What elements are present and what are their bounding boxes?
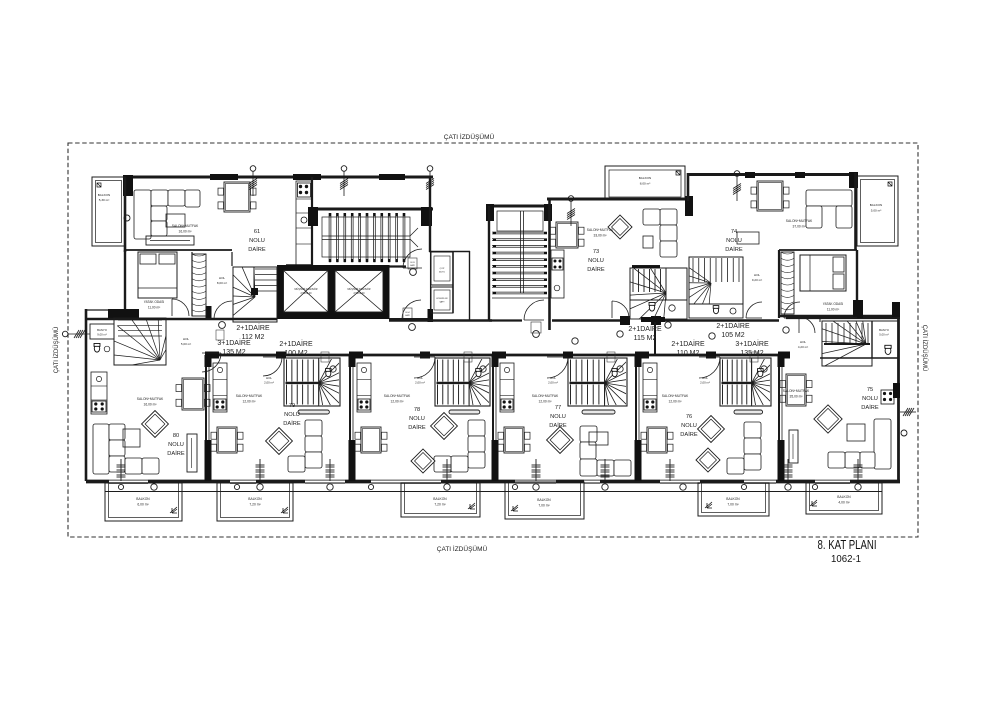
svg-text:HOL: HOL xyxy=(183,337,190,341)
svg-text:4,00 m²: 4,00 m² xyxy=(838,501,850,505)
svg-text:6,00 m²: 6,00 m² xyxy=(137,503,149,507)
svg-text:SALON+MUTFAK: SALON+MUTFAK xyxy=(786,219,813,223)
svg-text:5,00 m²: 5,00 m² xyxy=(181,342,191,346)
svg-text:SALON+MUTFAK: SALON+MUTFAK xyxy=(587,228,614,232)
svg-text:16,00 m²: 16,00 m² xyxy=(143,403,157,407)
svg-text:NOLU: NOLU xyxy=(249,238,265,244)
svg-text:ÇATI İZDÜŞÜMÜ: ÇATI İZDÜŞÜMÜ xyxy=(53,327,60,374)
svg-text:74: 74 xyxy=(731,229,737,235)
svg-text:NOLU: NOLU xyxy=(726,238,742,244)
svg-text:5,00 m²: 5,00 m² xyxy=(871,209,882,213)
svg-text:DAİRE: DAİRE xyxy=(680,431,698,438)
svg-text:2+1DAİRE: 2+1DAİRE xyxy=(671,339,705,348)
svg-text:2+1DAİRE: 2+1DAİRE xyxy=(279,339,313,348)
svg-text:7,20 m²: 7,20 m² xyxy=(249,503,261,507)
svg-text:ÇATI İZDÜŞÜMÜ: ÇATI İZDÜŞÜMÜ xyxy=(437,544,488,553)
svg-text:2+1DAİRE: 2+1DAİRE xyxy=(236,323,270,332)
svg-text:KÖMÜRLÜK: KÖMÜRLÜK xyxy=(436,297,448,300)
svg-text:HOL: HOL xyxy=(702,376,708,380)
svg-text:12,00 m²: 12,00 m² xyxy=(538,400,552,404)
svg-text:BALKON: BALKON xyxy=(726,497,740,501)
svg-text:3+1DAİRE: 3+1DAİRE xyxy=(217,338,251,347)
svg-text:HOL: HOL xyxy=(800,340,807,344)
svg-text:33,00 m²: 33,00 m² xyxy=(593,234,607,238)
svg-text:KAPI: KAPI xyxy=(410,264,415,267)
svg-text:11,00 m²: 11,00 m² xyxy=(827,308,839,312)
svg-text:3+1DAİRE: 3+1DAİRE xyxy=(735,339,769,348)
svg-text:DAİRE: DAİRE xyxy=(549,422,567,429)
svg-text:NOLU: NOLU xyxy=(862,396,878,402)
svg-text:HOL: HOL xyxy=(550,376,556,380)
svg-text:SALON+MUTFAK: SALON+MUTFAK xyxy=(236,394,263,398)
svg-text:DAİRE: DAİRE xyxy=(408,424,426,431)
svg-text:79: 79 xyxy=(289,403,295,409)
svg-text:2,00 m²: 2,00 m² xyxy=(415,381,425,385)
svg-text:75: 75 xyxy=(867,387,873,393)
svg-text:HOL: HOL xyxy=(417,376,423,380)
svg-text:SALON+MUTFAK: SALON+MUTFAK xyxy=(137,397,164,401)
svg-text:135 M2: 135 M2 xyxy=(222,349,245,356)
svg-text:ÇÖP: ÇÖP xyxy=(440,267,445,270)
svg-text:115 M2: 115 M2 xyxy=(634,335,657,342)
svg-text:DAİRE: DAİRE xyxy=(587,266,605,273)
svg-text:16,00 m²: 16,00 m² xyxy=(178,230,192,234)
svg-text:61: 61 xyxy=(254,229,260,235)
svg-text:NOLU: NOLU xyxy=(681,423,697,429)
svg-text:76: 76 xyxy=(686,414,692,420)
svg-text:78: 78 xyxy=(414,407,420,413)
svg-text:35,00 m²: 35,00 m² xyxy=(789,395,803,399)
svg-text:SALON+MUTFAK: SALON+MUTFAK xyxy=(783,389,810,393)
svg-text:135 M2: 135 M2 xyxy=(740,350,763,357)
svg-text:105 M2: 105 M2 xyxy=(721,332,744,339)
svg-text:ÇATI İZDÜŞÜMÜ: ÇATI İZDÜŞÜMÜ xyxy=(921,325,928,372)
svg-text:110 M2: 110 M2 xyxy=(677,350,700,357)
svg-text:MÜŞTERİ ASANSÖR: MÜŞTERİ ASANSÖR xyxy=(348,288,371,291)
svg-text:DAİRE: DAİRE xyxy=(283,420,301,427)
svg-text:7,00 m²: 7,00 m² xyxy=(538,504,550,508)
svg-text:ÇATI İZDÜŞÜMÜ: ÇATI İZDÜŞÜMÜ xyxy=(444,132,495,141)
svg-text:7,00 m²: 7,00 m² xyxy=(727,503,739,507)
svg-text:4,20 m²: 4,20 m² xyxy=(798,345,808,349)
svg-text:NOLU: NOLU xyxy=(284,412,300,418)
svg-text:SALON+MUTFAK: SALON+MUTFAK xyxy=(172,224,199,228)
svg-text:12,00 m²: 12,00 m² xyxy=(242,400,256,404)
svg-text:YATAK ODASI: YATAK ODASI xyxy=(823,302,844,306)
svg-text:8. KAT PLANI: 8. KAT PLANI xyxy=(818,538,877,552)
svg-text:SALON+MUTFAK: SALON+MUTFAK xyxy=(532,394,559,398)
svg-text:2,50X2,20: 2,50X2,20 xyxy=(354,292,366,295)
svg-text:ŞUTU: ŞUTU xyxy=(439,272,445,274)
svg-text:DAİRE: DAİRE xyxy=(248,246,266,253)
svg-text:HOL: HOL xyxy=(754,273,761,277)
svg-text:BALKON: BALKON xyxy=(537,498,551,502)
svg-text:80: 80 xyxy=(173,433,179,439)
svg-text:100 M2: 100 M2 xyxy=(284,350,307,357)
svg-text:12,00 m²: 12,00 m² xyxy=(668,400,682,404)
svg-text:1062-1: 1062-1 xyxy=(831,553,861,565)
svg-text:12,00 m²: 12,00 m² xyxy=(390,400,404,404)
svg-text:37,00 m²: 37,00 m² xyxy=(792,225,806,229)
svg-text:NOLU: NOLU xyxy=(550,414,566,420)
svg-text:5,00 m²: 5,00 m² xyxy=(879,333,889,337)
svg-text:2+1DAİRE: 2+1DAİRE xyxy=(628,324,662,333)
svg-text:BANYO: BANYO xyxy=(97,328,108,332)
svg-text:BALKON: BALKON xyxy=(98,193,111,197)
svg-text:MÜŞTERİ ASANSÖR: MÜŞTERİ ASANSÖR xyxy=(295,288,318,291)
svg-text:5,30 m²: 5,30 m² xyxy=(99,198,110,202)
svg-text:77: 77 xyxy=(555,405,561,411)
svg-text:BANYO: BANYO xyxy=(879,328,890,332)
svg-text:2+1DAİRE: 2+1DAİRE xyxy=(716,321,750,330)
svg-text:BALKON: BALKON xyxy=(136,497,150,501)
svg-text:DAİRE: DAİRE xyxy=(861,404,879,411)
svg-text:9,00 m²: 9,00 m² xyxy=(97,333,107,337)
svg-text:YATAK ODASI: YATAK ODASI xyxy=(144,300,165,304)
svg-text:DAİRE: DAİRE xyxy=(725,246,743,253)
svg-text:NOLU: NOLU xyxy=(409,416,425,422)
svg-text:7,20 m²: 7,20 m² xyxy=(434,503,446,507)
svg-text:SALON+MUTFAK: SALON+MUTFAK xyxy=(384,394,411,398)
svg-text:2,50X2,20: 2,50X2,20 xyxy=(301,292,313,295)
svg-text:SALON+MUTFAK: SALON+MUTFAK xyxy=(662,394,689,398)
svg-text:BALKON: BALKON xyxy=(639,176,652,180)
svg-text:2,00 m²: 2,00 m² xyxy=(548,381,558,385)
svg-text:2,00 m²: 2,00 m² xyxy=(700,381,710,385)
svg-text:HOL: HOL xyxy=(219,276,226,280)
svg-text:BALKON: BALKON xyxy=(870,203,883,207)
svg-text:KAPI: KAPI xyxy=(405,314,410,317)
svg-text:DAİRE: DAİRE xyxy=(167,450,185,457)
svg-text:73: 73 xyxy=(593,249,599,255)
svg-text:BALKON: BALKON xyxy=(433,497,447,501)
svg-text:NOLU: NOLU xyxy=(588,258,604,264)
svg-text:9,20 m²: 9,20 m² xyxy=(752,278,762,282)
svg-text:HOL: HOL xyxy=(266,376,272,380)
svg-text:8,00 m²: 8,00 m² xyxy=(217,281,227,285)
svg-text:2,00 m²: 2,00 m² xyxy=(264,381,274,385)
svg-text:11,00 m²: 11,00 m² xyxy=(148,306,160,310)
svg-text:NOLU: NOLU xyxy=(168,442,184,448)
svg-text:BALKON: BALKON xyxy=(248,497,262,501)
svg-text:BALKON: BALKON xyxy=(837,495,851,499)
svg-text:ŞAFT: ŞAFT xyxy=(439,301,445,304)
svg-text:8,00 m²: 8,00 m² xyxy=(640,182,651,186)
